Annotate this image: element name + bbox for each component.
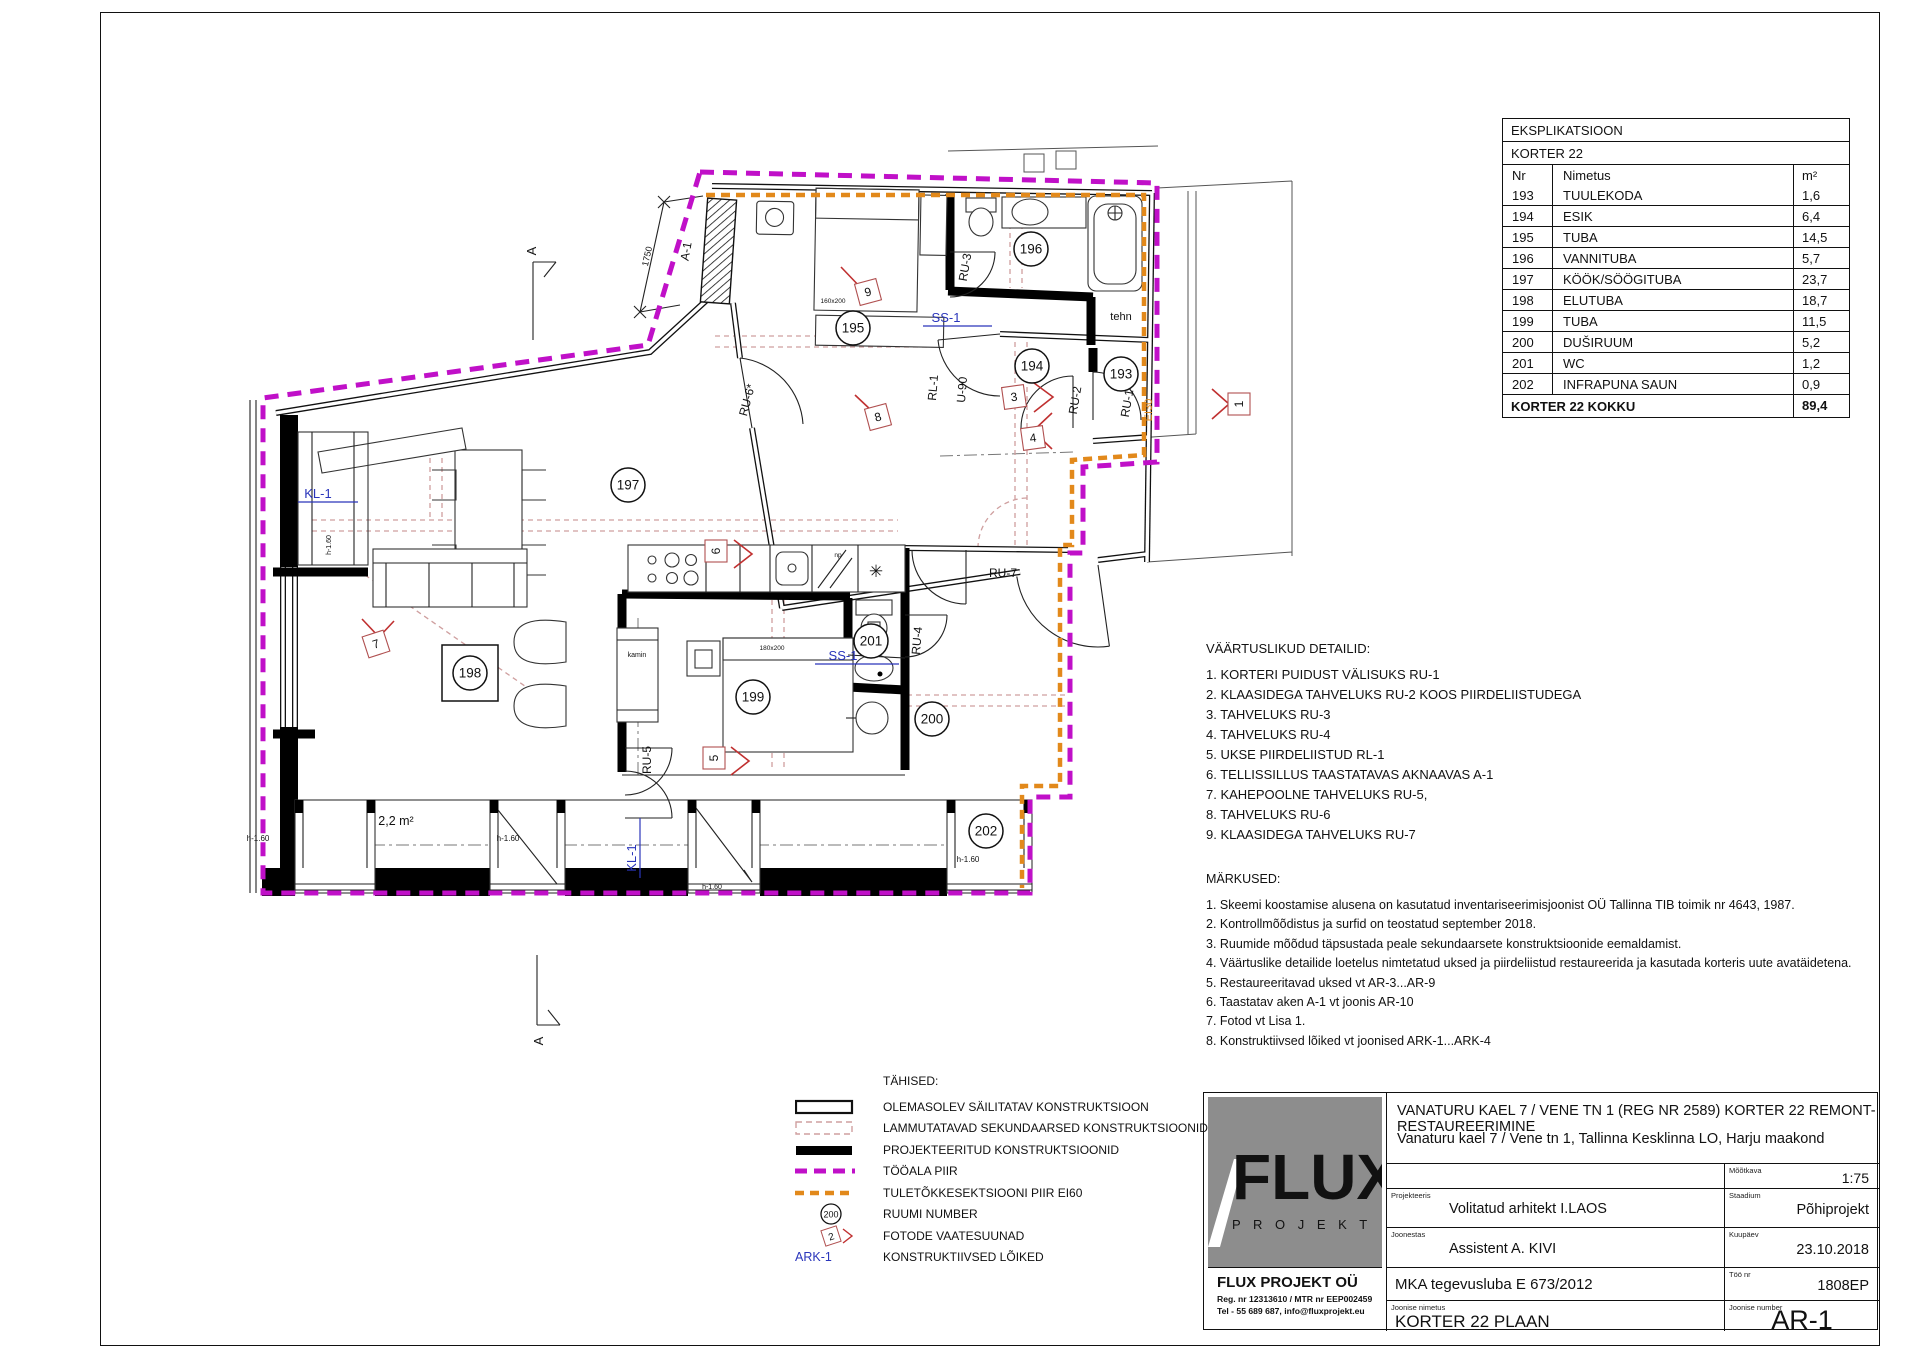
plan-label-h-160: h-1.60 (326, 535, 333, 555)
note-item: 7. Fotod vt Lisa 1. (1206, 1012, 1852, 1031)
legend-item-existing-wall: OLEMASOLEV SÄILITATAV KONSTRUKTSIOON (795, 1096, 1208, 1118)
svg-text:h-1.60: h-1.60 (497, 834, 520, 843)
existing-wall-swatch (795, 1096, 861, 1118)
plan-label-RU-6: RU-6* (736, 382, 758, 418)
room-marker-202: 202 (969, 814, 1003, 848)
demolish-swatch (795, 1118, 861, 1140)
legend-item-room-number: 200RUUMI NUMBER (795, 1204, 1208, 1226)
plan-label-22m: 2,2 m² (378, 814, 413, 828)
svg-text:h-1.60: h-1.60 (702, 884, 722, 891)
legend-item-new-wall: PROJEKTEERITUD KONSTRUKTSIOONID (795, 1139, 1208, 1161)
valuable-detail-item: 3. TAHVELUKS RU-3 (1206, 705, 1581, 725)
photo-marker-1: 1 (1228, 393, 1250, 415)
note-item: 1. Skeemi koostamise alusena on kasutatu… (1206, 896, 1852, 915)
bay-2 (490, 800, 565, 893)
plan-label-U-90: U-90 (954, 376, 970, 403)
room-number-swatch: 200 (795, 1204, 861, 1226)
svg-text:194: 194 (1021, 359, 1044, 374)
svg-text:180x200: 180x200 (760, 645, 785, 652)
legend: TÄHISED: OLEMASOLEV SÄILITATAV KONSTRUKT… (795, 1074, 1208, 1268)
logo-main-text: FLUX (1232, 1141, 1382, 1213)
explication-row: 201WC1,2 (1503, 352, 1849, 373)
plan-label-RU-7: RU-7 (989, 566, 1017, 580)
explication-total-row: KORTER 22 KOKKU 89,4 (1503, 394, 1849, 417)
window-a1 (700, 198, 736, 304)
drawing-nr-value: AR-1 (1725, 1305, 1879, 1336)
valuable-details-heading: VÄÄRTUSLIKUD DETAILID: (1206, 641, 1581, 656)
svg-text:5: 5 (707, 754, 721, 761)
explication-table: EKSPLIKATSIOON KORTER 22 Nr Nimetus m² 1… (1502, 118, 1850, 418)
svg-text:RU-2: RU-2 (1066, 385, 1085, 415)
svg-text:RU-3: RU-3 (956, 252, 975, 282)
svg-text:RU-5: RU-5 (640, 746, 654, 774)
plan-label-RU-2: RU-2 (1066, 385, 1085, 415)
drawing-sheet: 193194195196197198199200201202A-11750KL-… (0, 0, 1920, 1357)
svg-text:202: 202 (975, 824, 998, 839)
photo-marker-6: 6 (705, 540, 727, 562)
svg-text:160x200: 160x200 (821, 298, 846, 305)
note-item: 2. Kontrollmõõdistus ja surfid on teosta… (1206, 915, 1852, 934)
explication-row: 196VANNITUBA5,7 (1503, 247, 1849, 268)
svg-text:SS-1: SS-1 (829, 648, 858, 663)
svg-text:A: A (531, 1036, 546, 1045)
svg-text:SS-1: SS-1 (932, 310, 961, 325)
svg-text:199: 199 (742, 690, 765, 705)
bay-3 (688, 800, 760, 893)
explication-row: 197KÖÖK/SÖÖGITUBA23,7 (1503, 268, 1849, 289)
explication-row: 200DUŠIRUUM5,2 (1503, 331, 1849, 352)
legend-label: LAMMUTATAVAD SEKUNDAARSED KONSTRUKTSIOON… (883, 1121, 1208, 1135)
plan-label-RL-1: RL-1 (925, 374, 941, 401)
valuable-detail-item: 5. UKSE PIIRDELIISTUD RL-1 (1206, 745, 1581, 765)
explication-row: 193TUULEKODA1,6 (1503, 185, 1849, 205)
plan-label-tehn: tehn (1110, 311, 1131, 323)
fire-boundary-swatch (795, 1182, 861, 1204)
explication-title: EKSPLIKATSIOON (1503, 119, 1623, 141)
legend-item-fire-boundary: TULETÕKKESEKTSIOONI PIIR EI60 (795, 1182, 1208, 1204)
valuable-details: VÄÄRTUSLIKUD DETAILID: 1. KORTERI PUIDUS… (1206, 641, 1581, 845)
svg-text:1750: 1750 (640, 245, 654, 267)
plan-label-np: np (834, 552, 842, 559)
section-swatch: ARK-1 (795, 1247, 861, 1269)
legend-label: OLEMASOLEV SÄILITATAV KONSTRUKTSIOON (883, 1100, 1149, 1114)
svg-text:A: A (524, 246, 539, 255)
svg-text:✳: ✳ (869, 562, 883, 581)
valuable-detail-item: 9. KLAASIDEGA TAHVELUKS RU-7 (1206, 825, 1581, 845)
room-marker-196: 196 (1014, 232, 1048, 266)
valuable-detail-item: 8. TAHVELUKS RU-6 (1206, 805, 1581, 825)
designer-value: Volitatud arhitekt I.LAOS (1449, 1201, 1607, 1217)
logo-sub-text: P R O J E K T (1232, 1217, 1372, 1232)
photo-marker-5: 5 (703, 747, 725, 769)
room-marker-200: 200 (915, 702, 949, 736)
room-marker-194: 194 (1015, 349, 1049, 383)
svg-text:U-90: U-90 (954, 376, 970, 403)
plan-label-h-160: h-1.60 (702, 884, 722, 891)
plan-label-h-160: h-1.60 (247, 834, 270, 843)
notes-heading: MÄRKUSED: (1206, 872, 1852, 886)
explication-row: 198ELUTUBA18,7 (1503, 289, 1849, 310)
room-marker-197: 197 (611, 468, 645, 502)
plan-label-160x200: 160x200 (821, 298, 846, 305)
work-boundary-swatch (795, 1161, 861, 1183)
plan-label-A: A (524, 246, 539, 255)
legend-item-demolish: LAMMUTATAVAD SEKUNDAARSED KONSTRUKTSIOON… (795, 1118, 1208, 1140)
scale-label: Mõõtkava (1729, 1166, 1762, 1175)
section-marker-top (533, 262, 556, 340)
legend-heading: TÄHISED: (883, 1074, 1208, 1088)
valuable-detail-item: 7. KAHEPOOLNE TAHVELUKS RU-5, (1206, 785, 1581, 805)
explication-header: Nr Nimetus m² (1503, 164, 1849, 185)
plan-label-KL-1: KL-1 (624, 818, 640, 878)
permit-value: MKA tegevusluba E 673/2012 (1395, 1276, 1593, 1293)
svg-text:2,2 m²: 2,2 m² (378, 814, 413, 828)
svg-text:196: 196 (1020, 242, 1043, 257)
plan-label-RU-4: RU-4 (909, 626, 925, 655)
photo-marker-7: 7 (362, 630, 390, 658)
flux-logo: FLUX P R O J E K T (1208, 1097, 1382, 1267)
photo-marker-3: 3 (1002, 385, 1027, 410)
legend-label: FOTODE VAATESUUNAD (883, 1229, 1024, 1243)
plan-label-h-160: h-1.60 (957, 855, 980, 864)
svg-text:193: 193 (1110, 367, 1133, 382)
svg-text:h-1.60: h-1.60 (957, 855, 980, 864)
title-block: FLUX P R O J E K T FLUX PROJEKT OÜ Reg. … (1203, 1092, 1878, 1330)
room-marker-199: 199 (736, 680, 770, 714)
svg-text:tehn: tehn (1110, 311, 1131, 323)
svg-text:1: 1 (1232, 400, 1246, 407)
demolition-lines (312, 197, 1068, 770)
section-marker-bottom (537, 955, 560, 1025)
valuable-detail-item: 2. KLAASIDEGA TAHVELUKS RU-2 KOOS PIIRDE… (1206, 685, 1581, 705)
explication-subtitle: KORTER 22 (1503, 142, 1583, 164)
svg-text:198: 198 (459, 666, 482, 681)
worknr-label: Töö nr (1729, 1270, 1751, 1279)
svg-text:A-1: A-1 (678, 241, 695, 262)
valuable-detail-item: 6. TELLISSILLUS TAASTATAVAS AKNAAVAS A-1 (1206, 765, 1581, 785)
plan-label-RU-3: RU-3 (956, 252, 975, 282)
drafter-label: Joonestas (1391, 1230, 1425, 1239)
svg-text:RL-1: RL-1 (925, 374, 941, 401)
project-address: Vanaturu kael 7 / Vene tn 1, Tallinna Ke… (1397, 1131, 1824, 1147)
plan-label-180x200: 180x200 (760, 645, 785, 652)
photo-marker-4: 4 (1021, 426, 1046, 451)
valuable-detail-item: 1. KORTERI PUIDUST VÄLISUKS RU-1 (1206, 665, 1581, 685)
new-wall-swatch (795, 1139, 861, 1161)
plan-label-SS-1: SS-1 (923, 310, 992, 326)
legend-label: PROJEKTEERITUD KONSTRUKTSIOONID (883, 1143, 1119, 1157)
svg-text:KL-1: KL-1 (304, 486, 331, 501)
explication-row: 199TUBA11,5 (1503, 310, 1849, 331)
drawing-name-label: Joonise nimetus (1391, 1303, 1445, 1312)
explication-row: 194ESIK6,4 (1503, 205, 1849, 226)
worknr-value: 1808EP (1817, 1278, 1869, 1294)
room-marker-193: 193 (1104, 357, 1138, 391)
legend-label: TÖÖALA PIIR (883, 1164, 958, 1178)
legend-label: TULETÕKKESEKTSIOONI PIIR EI60 (883, 1186, 1082, 1200)
legend-item-section: ARK-1KONSTRUKTIIVSED LÕIKED (795, 1247, 1208, 1269)
svg-text:RU-7: RU-7 (989, 566, 1017, 580)
drafter-value: Assistent A. KIVI (1449, 1241, 1556, 1257)
legend-item-photo-direction: 2FOTODE VAATESUUNAD (795, 1225, 1208, 1247)
plan-label-: ✳ (869, 562, 883, 581)
plan-label-A: A (531, 1036, 546, 1045)
note-item: 4. Väärtuslike detailide loetelus nimtet… (1206, 954, 1852, 973)
legend-item-work-boundary: TÖÖALA PIIR (795, 1161, 1208, 1183)
facade-outer (250, 400, 256, 893)
svg-text:KL-1: KL-1 (624, 844, 639, 871)
date-label: Kuupäev (1729, 1230, 1759, 1239)
svg-text:EI30: EI30 (1143, 399, 1155, 422)
bay-1 (295, 800, 375, 893)
explication-row: 202INFRAPUNA SAUN0,9 (1503, 373, 1849, 394)
svg-text:201: 201 (860, 634, 883, 649)
note-item: 3. Ruumide mõõdud täpsustada peale sekun… (1206, 935, 1852, 954)
svg-text:h-1.60: h-1.60 (247, 834, 270, 843)
plan-label-KL-1: KL-1 (298, 486, 358, 502)
note-item: 8. Konstruktiivsed lõiked vt joonised AR… (1206, 1032, 1852, 1051)
stage-value: Põhiprojekt (1796, 1202, 1869, 1218)
note-item: 5. Restaureeritavad uksed vt AR-3...AR-9 (1206, 974, 1852, 993)
explication-row: 195TUBA14,5 (1503, 226, 1849, 247)
drawing-name-value: KORTER 22 PLAAN (1395, 1312, 1550, 1332)
plan-label-1750: 1750 (640, 245, 654, 267)
svg-text:RU-6*: RU-6* (736, 382, 758, 418)
room-marker-201: 201 (854, 624, 888, 658)
note-item: 6. Taastatav aken A-1 vt joonis AR-10 (1206, 993, 1852, 1012)
plan-label-h-160: h-1.60 (497, 834, 520, 843)
company-reg: Reg. nr 12313610 / MTR nr EEP002459 (1217, 1294, 1382, 1304)
valuable-detail-item: 4. TAHVELUKS RU-4 (1206, 725, 1581, 745)
room-marker-198: 198 (442, 645, 498, 701)
svg-text:kamin: kamin (628, 652, 647, 659)
designer-label: Projekteeris (1391, 1191, 1431, 1200)
plan-label-EI30: EI30 (1143, 399, 1155, 422)
plan-label-A-1: A-1 (678, 241, 695, 262)
svg-text:197: 197 (617, 478, 640, 493)
svg-text:h-1.60: h-1.60 (326, 535, 333, 555)
plan-label-kamin: kamin (628, 652, 647, 659)
svg-text:np: np (834, 552, 842, 559)
svg-text:200: 200 (921, 712, 944, 727)
company-tel: Tel - 55 689 687, info@fluxprojekt.eu (1217, 1306, 1382, 1316)
svg-text:200: 200 (823, 1210, 838, 1220)
stage-label: Staadium (1729, 1191, 1761, 1200)
notes: MÄRKUSED: 1. Skeemi koostamise alusena o… (1206, 872, 1852, 1051)
svg-text:RU-1: RU-1 (1118, 388, 1137, 418)
company-info: FLUX PROJEKT OÜ Reg. nr 12313610 / MTR n… (1208, 1267, 1382, 1327)
svg-text:6: 6 (709, 547, 723, 554)
date-value: 23.10.2018 (1796, 1242, 1869, 1258)
legend-label: KONSTRUKTIIVSED LÕIKED (883, 1250, 1044, 1264)
svg-text:RU-4: RU-4 (909, 626, 925, 655)
svg-text:195: 195 (842, 321, 865, 336)
plan-label-RU-5: RU-5 (640, 746, 654, 774)
scale-value: 1:75 (1842, 1170, 1869, 1186)
plan-label-RU-1: RU-1 (1118, 388, 1137, 418)
legend-label: RUUMI NUMBER (883, 1207, 978, 1221)
company-name: FLUX PROJEKT OÜ (1217, 1274, 1382, 1291)
room-marker-195: 195 (836, 311, 870, 345)
photo-direction-swatch: 2 (795, 1225, 861, 1247)
